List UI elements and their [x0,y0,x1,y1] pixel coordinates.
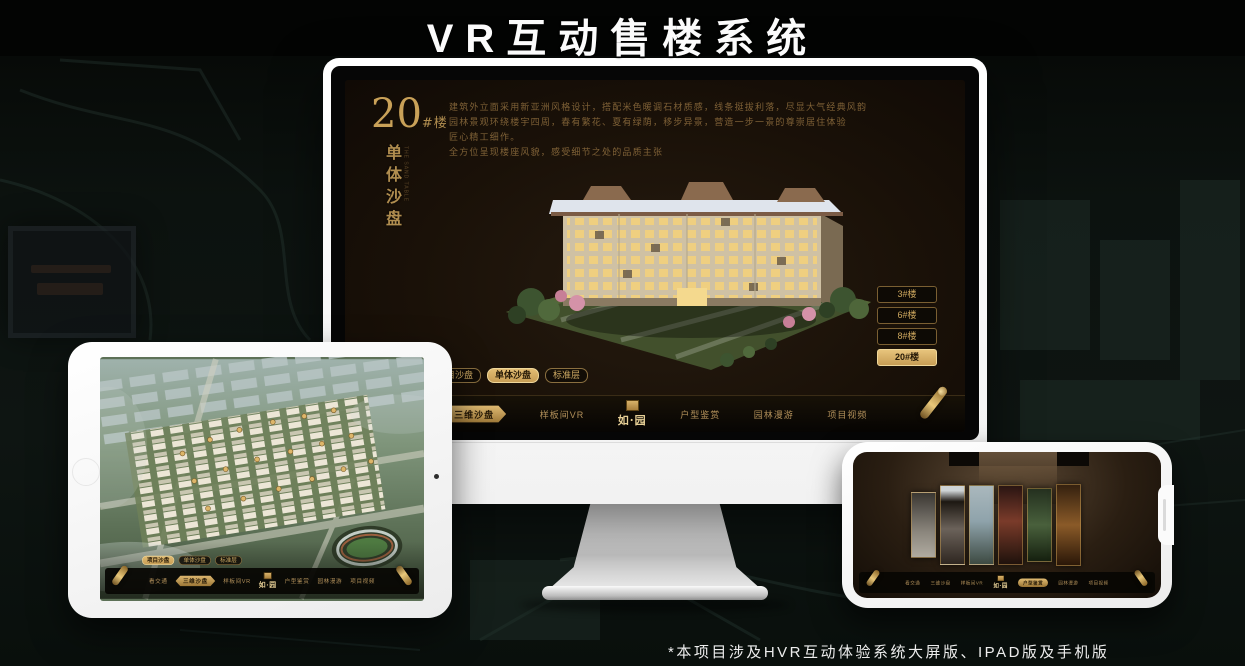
scroll-menu-icon[interactable] [918,387,947,421]
ipad-subtab-project-sandtable[interactable]: 项目沙盘 [142,556,174,565]
page-title: VR互动售楼系统 [0,6,1245,64]
scene-card-garden[interactable] [1027,488,1052,562]
phone-brand-seal-icon [997,576,1004,582]
subtab-single-sandtable[interactable]: 单体沙盘 [487,368,539,383]
scene-card-interior[interactable] [911,492,936,558]
headline-vertical-label: 单体沙盘 [379,144,403,232]
ipad-nav-item-garden-tour[interactable]: 园林漫游 [317,577,342,585]
scene-card-strips [911,486,1081,564]
ipad-device: 项目沙盘 单体沙盘 标准层 看交通 三维沙盘 样板间VR 如·园 户型鉴赏 园林… [68,342,452,618]
scene-card-study[interactable] [1056,484,1081,566]
ipad-nav-item-traffic[interactable]: 看交通 [149,577,168,585]
nav-item-garden-tour[interactable]: 园林漫游 [754,408,794,421]
ipad-nav-item-showroom-vr[interactable]: 样板间VR [223,577,251,585]
headline-vertical-english: THE SAND TABLE [403,146,409,202]
building-number-headline: 20#楼 [371,94,448,144]
scene-card-building[interactable] [969,485,994,565]
phone-nav-item-floorplans[interactable]: 户型鉴赏 [1018,578,1048,587]
scene-card-lobby[interactable] [998,485,1023,565]
sandtable-subtabs: 项目沙盘 单体沙盘 标准层 [429,368,588,383]
building-button-3[interactable]: 3#楼 [877,286,937,303]
ipad-nav-item-floorplans[interactable]: 户型鉴赏 [285,577,310,585]
ipad-subtabs: 项目沙盘 单体沙盘 标准层 [142,556,242,565]
ipad-bottom-nav: 看交通 三维沙盘 样板间VR 如·园 户型鉴赏 园林漫游 项目视频 [105,568,419,594]
ipad-nav-item-3d-sandtable[interactable]: 三维沙盘 [176,575,216,587]
building-button-8[interactable]: 8#楼 [877,328,937,345]
building-3d-render[interactable] [491,152,881,374]
building-description: 建筑外立面采用新亚洲风格设计，搭配米色暖调石材质感，线条挺拔利落，尽显大气经典风… [449,100,897,160]
brand-seal-icon [626,400,639,411]
phone-bottom-nav: 看交通 三维沙盘 样板间VR 如·园 户型鉴赏 园林漫游 项目视频 [859,572,1155,593]
ipad-subtab-single-sandtable[interactable]: 单体沙盘 [179,556,211,565]
ipad-nav-item-project-video[interactable]: 项目视频 [350,577,375,585]
building-button-6[interactable]: 6#楼 [877,307,937,324]
building-selector: 3#楼 6#楼 8#楼 20#楼 [877,286,937,370]
phone-nav-item-garden-tour[interactable]: 园林漫游 [1058,579,1078,586]
ipad-brand-logo: 如·园 [259,572,277,589]
monitor-stand-base [542,586,768,600]
phone-notch [1158,485,1174,545]
nav-item-project-video[interactable]: 项目视频 [827,408,867,421]
phone-nav-item-traffic[interactable]: 看交通 [905,579,920,586]
award-plaque-decor [8,226,136,338]
footnote-text: *本项目涉及HVR互动体验系统大屏版、IPAD版及手机版 [668,641,1109,662]
ipad-brand-seal-icon [264,572,272,579]
phone-nav-item-showroom-vr[interactable]: 样板间VR [961,579,983,586]
phone-nav-item-project-video[interactable]: 项目视频 [1089,579,1109,586]
building-button-20[interactable]: 20#楼 [877,349,937,366]
phone-screen: 看交通 三维沙盘 样板间VR 如·园 户型鉴赏 园林漫游 项目视频 [853,452,1161,598]
ipad-camera-icon [434,474,439,479]
ipad-subtab-standard-floor[interactable]: 标准层 [215,556,242,565]
phone-device: 看交通 三维沙盘 样板间VR 如·园 户型鉴赏 园林漫游 项目视频 [842,442,1172,608]
monitor-stand-shadow [520,598,790,612]
ipad-bezel-ring [72,458,100,486]
scene-card-kitchen[interactable] [940,485,965,565]
subtab-standard-floor[interactable]: 标准层 [545,368,588,383]
phone-nav-item-3d-sandtable[interactable]: 三维沙盘 [931,579,951,586]
nav-item-floorplans[interactable]: 户型鉴赏 [680,408,720,421]
nav-item-showroom-vr[interactable]: 样板间VR [540,408,585,421]
ipad-screen: 项目沙盘 单体沙盘 标准层 看交通 三维沙盘 样板间VR 如·园 户型鉴赏 园林… [100,357,424,601]
brand-logo: 如·园 [618,400,647,428]
phone-brand-logo: 如·园 [993,576,1007,590]
